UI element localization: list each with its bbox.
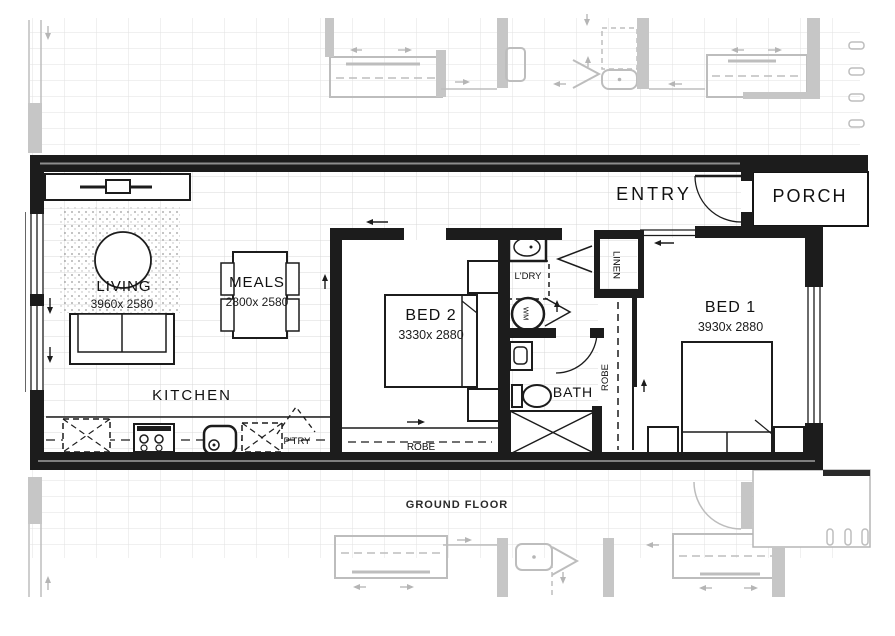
room-label-bed2: BED 2 (396, 307, 466, 325)
room-dims-bed1: 3930x 2880 (683, 321, 778, 335)
wall-bed2-left (330, 228, 342, 452)
wall-under-porch (695, 226, 823, 238)
window-living-1 (30, 214, 44, 294)
linen-cupboard (594, 230, 644, 239)
room-dims-bed2: 3330x 2880 (386, 329, 476, 343)
vanity (510, 342, 532, 370)
room-label-entry: ENTRY (612, 185, 696, 205)
tv-unit (45, 174, 190, 200)
neighbour-unit-top (28, 14, 864, 155)
fridge-space (63, 419, 110, 452)
room-dims-living: 3960x 2580 (72, 298, 172, 311)
wall-right (805, 238, 823, 288)
kitchen-sink (204, 426, 236, 454)
wall-bed2-right (498, 238, 510, 452)
label-robe-bed2: ROBE (398, 442, 444, 453)
washing-machine-label: WM (521, 303, 529, 325)
floor-plan: LIVING 3960x 2580 MEALS 2800x 2580 KITCH… (0, 0, 895, 636)
label-robe-bed1: ROBE (601, 355, 611, 401)
room-label-living: LIVING (84, 279, 164, 296)
window-bed1 (805, 287, 823, 423)
shower (510, 411, 596, 454)
room-label-porch: PORCH (766, 187, 854, 207)
neighbour-unit-bottom (28, 470, 870, 597)
room-dims-meals: 2800x 2580 (207, 296, 307, 309)
sofa (70, 314, 174, 364)
room-label-bed1: BED 1 (693, 299, 768, 317)
cooktop (134, 424, 174, 452)
room-label-laundry: L'DRY (506, 272, 550, 282)
room-label-linen: LINEN (610, 240, 620, 290)
room-label-kitchen: KITCHEN (142, 388, 242, 405)
room-label-meals: MEALS (217, 275, 297, 292)
room-label-bath: BATH (543, 385, 603, 400)
plan-title: GROUND FLOOR (402, 499, 512, 511)
window-living-2 (30, 306, 44, 390)
room-label-pantry: P'TRY (278, 437, 316, 447)
dishwasher-space (242, 423, 282, 452)
